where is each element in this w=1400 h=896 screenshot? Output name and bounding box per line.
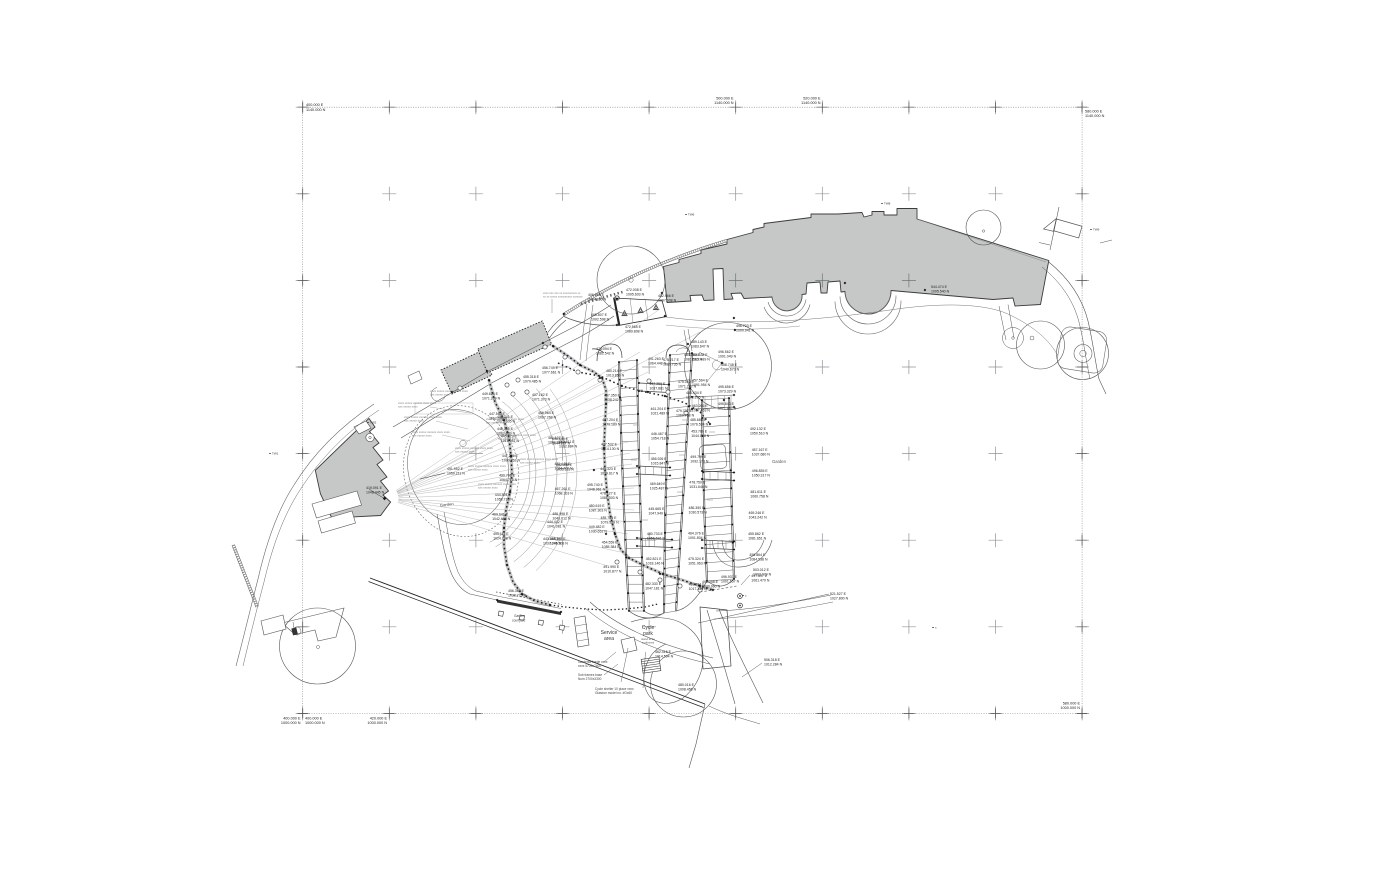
svg-text:1079.529 N: 1079.529 N: [601, 520, 620, 524]
svg-text:1076.534 N: 1076.534 N: [690, 422, 709, 426]
svg-text:1031.646 N: 1031.646 N: [689, 485, 708, 489]
svg-text:1060.758 N: 1060.758 N: [750, 494, 769, 498]
svg-text:1038.242 N: 1038.242 N: [604, 398, 623, 402]
svg-text:confirmed: confirmed: [642, 640, 655, 644]
svg-text:1067.268 N: 1067.268 N: [538, 415, 557, 419]
svg-text:500.000 E: 500.000 E: [716, 97, 734, 101]
svg-text:1081.542 N: 1081.542 N: [596, 351, 615, 355]
svg-text:1091.954 N: 1091.954 N: [692, 383, 711, 387]
svg-text:1094.826 N: 1094.826 N: [588, 297, 607, 301]
svg-text:520.000 E: 520.000 E: [803, 97, 821, 101]
svg-text:TW6: TW6: [688, 213, 695, 217]
svg-text:1027.800 N: 1027.800 N: [830, 596, 849, 600]
svg-text:1090.263 N: 1090.263 N: [502, 458, 521, 462]
svg-text:1071.209 N: 1071.209 N: [482, 396, 501, 400]
svg-text:1000.941 N: 1000.941 N: [736, 328, 755, 332]
svg-text:1095.603 N: 1095.603 N: [626, 292, 645, 296]
svg-text:1044.887 N: 1044.887 N: [552, 441, 571, 445]
svg-text:xxx xxxxx xxxx: xxx xxxxx xxxx: [468, 468, 488, 472]
svg-text:xxx xxxxx xxxx: xxx xxxxx xxxx: [455, 450, 475, 454]
svg-text:1087.303 N: 1087.303 N: [589, 508, 608, 512]
svg-text:1057.463 N: 1057.463 N: [692, 408, 711, 412]
svg-text:1092.598 N: 1092.598 N: [591, 317, 610, 321]
svg-text:1014.594 N: 1014.594 N: [655, 654, 674, 658]
svg-text:1041.081 N: 1041.081 N: [547, 524, 566, 528]
svg-text:1059.211 N: 1059.211 N: [447, 471, 465, 475]
svg-text:1071.373 N: 1071.373 N: [532, 397, 551, 401]
svg-text:1056.691 N: 1056.691 N: [647, 536, 666, 540]
svg-text:1095.540 N: 1095.540 N: [931, 289, 950, 293]
svg-text:1097.008 N: 1097.008 N: [658, 298, 677, 302]
svg-text:1044.818 N: 1044.818 N: [691, 434, 710, 438]
svg-text:420.000 E: 420.000 E: [370, 717, 388, 721]
svg-text:1022.489 N: 1022.489 N: [692, 357, 711, 361]
svg-text:xxx xxxxx xxxx: xxx xxxxx xxxx: [520, 461, 540, 465]
svg-text:1140.000 N: 1140.000 N: [306, 108, 326, 112]
svg-text:xxx xxxxx xxxx: xxx xxxxx xxxx: [412, 434, 432, 438]
svg-text:1064.448 N: 1064.448 N: [648, 361, 667, 365]
svg-text:area: area: [604, 636, 614, 642]
svg-text:1073.329 N: 1073.329 N: [718, 389, 737, 393]
svg-text:1028.725 N: 1028.725 N: [508, 593, 527, 597]
svg-text:400.000 E: 400.000 E: [283, 717, 301, 721]
svg-text:1039.617 N: 1039.617 N: [600, 471, 619, 475]
svg-text:xxx xxxxx xxxx: xxx xxxxx xxxx: [430, 393, 450, 397]
svg-text:Garden: Garden: [514, 614, 525, 618]
svg-text:1047.949 N: 1047.949 N: [648, 511, 667, 515]
svg-text:1010.877 N: 1010.877 N: [603, 569, 622, 573]
svg-text:TW2: TW2: [370, 421, 377, 425]
svg-text:1054.718 N: 1054.718 N: [651, 436, 670, 440]
svg-text:1140.000 N: 1140.000 N: [714, 101, 734, 105]
svg-text:1070.485 N: 1070.485 N: [523, 379, 542, 383]
svg-text:1092.173 N: 1092.173 N: [690, 459, 709, 463]
svg-text:1077.661 N: 1077.661 N: [542, 370, 561, 374]
svg-text:1043.242 N: 1043.242 N: [749, 515, 768, 519]
svg-text:1061.470 N: 1061.470 N: [751, 578, 770, 582]
svg-text:1058.710 N: 1058.710 N: [495, 497, 514, 501]
svg-text:1017.334 N: 1017.334 N: [689, 587, 708, 591]
svg-text:1048.445 N: 1048.445 N: [366, 490, 385, 494]
svg-text:1081.651 N: 1081.651 N: [748, 536, 767, 540]
svg-text:xx xx xxxxx xxxxxxxxxx xxxxxxx: xx xx xxxxx xxxxxxxxxx xxxxxxx: [543, 294, 583, 298]
svg-text:1091.049 N: 1091.049 N: [718, 354, 737, 358]
svg-text:1140.000 N: 1140.000 N: [1085, 114, 1105, 118]
svg-text:1084.538 N: 1084.538 N: [749, 557, 768, 561]
svg-text:Garden: Garden: [772, 459, 787, 464]
svg-text:1071.862 N: 1071.862 N: [718, 406, 737, 410]
svg-text:1030.652 N: 1030.652 N: [589, 529, 608, 533]
svg-text:1000.000 N: 1000.000 N: [305, 721, 325, 725]
svg-text:1042.666 N: 1042.666 N: [492, 517, 511, 521]
svg-text:1030.573 N: 1030.573 N: [689, 510, 708, 514]
svg-text:xxx xxxxx xxxx: xxx xxxxx xxxx: [486, 421, 506, 425]
svg-text:1037.881 N: 1037.881 N: [649, 386, 668, 390]
svg-text:1000.000 N: 1000.000 N: [367, 721, 387, 725]
svg-text:580.000 E: 580.000 E: [1085, 110, 1103, 114]
svg-text:1025.487 N: 1025.487 N: [650, 486, 669, 490]
svg-text:1069.758 N: 1069.758 N: [676, 413, 695, 417]
svg-text:1001.657 N: 1001.657 N: [721, 579, 740, 583]
svg-text:580.000 E: 580.000 E: [1063, 702, 1081, 706]
svg-text:1024.798 N: 1024.798 N: [493, 536, 512, 540]
svg-text:400.000 E: 400.000 E: [305, 717, 323, 721]
svg-text:Glasdon model no. #Gx60: Glasdon model no. #Gx60: [595, 691, 632, 695]
svg-text:1014.130 N: 1014.130 N: [601, 447, 620, 451]
svg-text:1043.612 N: 1043.612 N: [552, 516, 571, 520]
svg-text:1024.400 N: 1024.400 N: [555, 466, 574, 470]
svg-text:1083.647 N: 1083.647 N: [691, 344, 710, 348]
svg-text:1081.303 N: 1081.303 N: [600, 496, 619, 500]
svg-text:1091.804 N: 1091.804 N: [688, 536, 707, 540]
svg-text:400.000 E: 400.000 E: [306, 103, 324, 107]
svg-text:1047.181 N: 1047.181 N: [645, 586, 664, 590]
svg-text:1048.961 N: 1048.961 N: [587, 487, 606, 491]
svg-text:1051.963 N: 1051.963 N: [688, 561, 707, 565]
svg-text:1079.189 N: 1079.189 N: [602, 422, 621, 426]
svg-text:xxx xxxxx xxxx: xxx xxxxx xxxx: [498, 437, 518, 441]
svg-text:1050.510 N: 1050.510 N: [750, 431, 769, 435]
svg-text:1140.000 N: 1140.000 N: [801, 101, 821, 105]
svg-text:1085.384 N: 1085.384 N: [602, 545, 621, 549]
svg-text:TW1: TW1: [272, 452, 279, 456]
svg-text:xxx xxxxx xxxx: xxx xxxxx xxxx: [478, 486, 498, 490]
svg-text:1013.859 N: 1013.859 N: [606, 373, 625, 377]
svg-text:1089.808 N: 1089.808 N: [625, 329, 644, 333]
svg-text:1021.489 N: 1021.489 N: [651, 411, 670, 415]
svg-text:1008.456 N: 1008.456 N: [678, 687, 697, 691]
svg-text:1072.205 N: 1072.205 N: [686, 395, 705, 399]
svg-text:TW8: TW8: [884, 202, 891, 206]
svg-text:xxx xxxxx xxxx: xxx xxxxx xxxx: [404, 419, 424, 423]
svg-text:Nom 2700x3300: Nom 2700x3300: [578, 677, 602, 681]
svg-text:1037.680 N: 1037.680 N: [752, 452, 771, 456]
svg-text:1040.673 N: 1040.673 N: [721, 367, 740, 371]
svg-text:1000.000 N: 1000.000 N: [281, 721, 301, 725]
svg-text:1015.847 N: 1015.847 N: [651, 461, 670, 465]
svg-text:1000.000 N: 1000.000 N: [1060, 706, 1080, 710]
svg-text:1018.146 N: 1018.146 N: [646, 561, 665, 565]
svg-text:1050.317 N: 1050.317 N: [752, 473, 771, 477]
svg-text:1012.284 N: 1012.284 N: [764, 662, 783, 666]
svg-text:1068.103 N: 1068.103 N: [555, 491, 574, 495]
svg-text:xxxx 5700x7400: xxxx 5700x7400: [578, 664, 601, 668]
svg-text:courtyard: courtyard: [512, 619, 526, 623]
svg-text:TW9: TW9: [1093, 228, 1100, 232]
svg-text:1074.208 N: 1074.208 N: [550, 541, 569, 545]
svg-text:xxx xxxxx xxxx: xxx xxxxx xxxx: [398, 405, 418, 409]
